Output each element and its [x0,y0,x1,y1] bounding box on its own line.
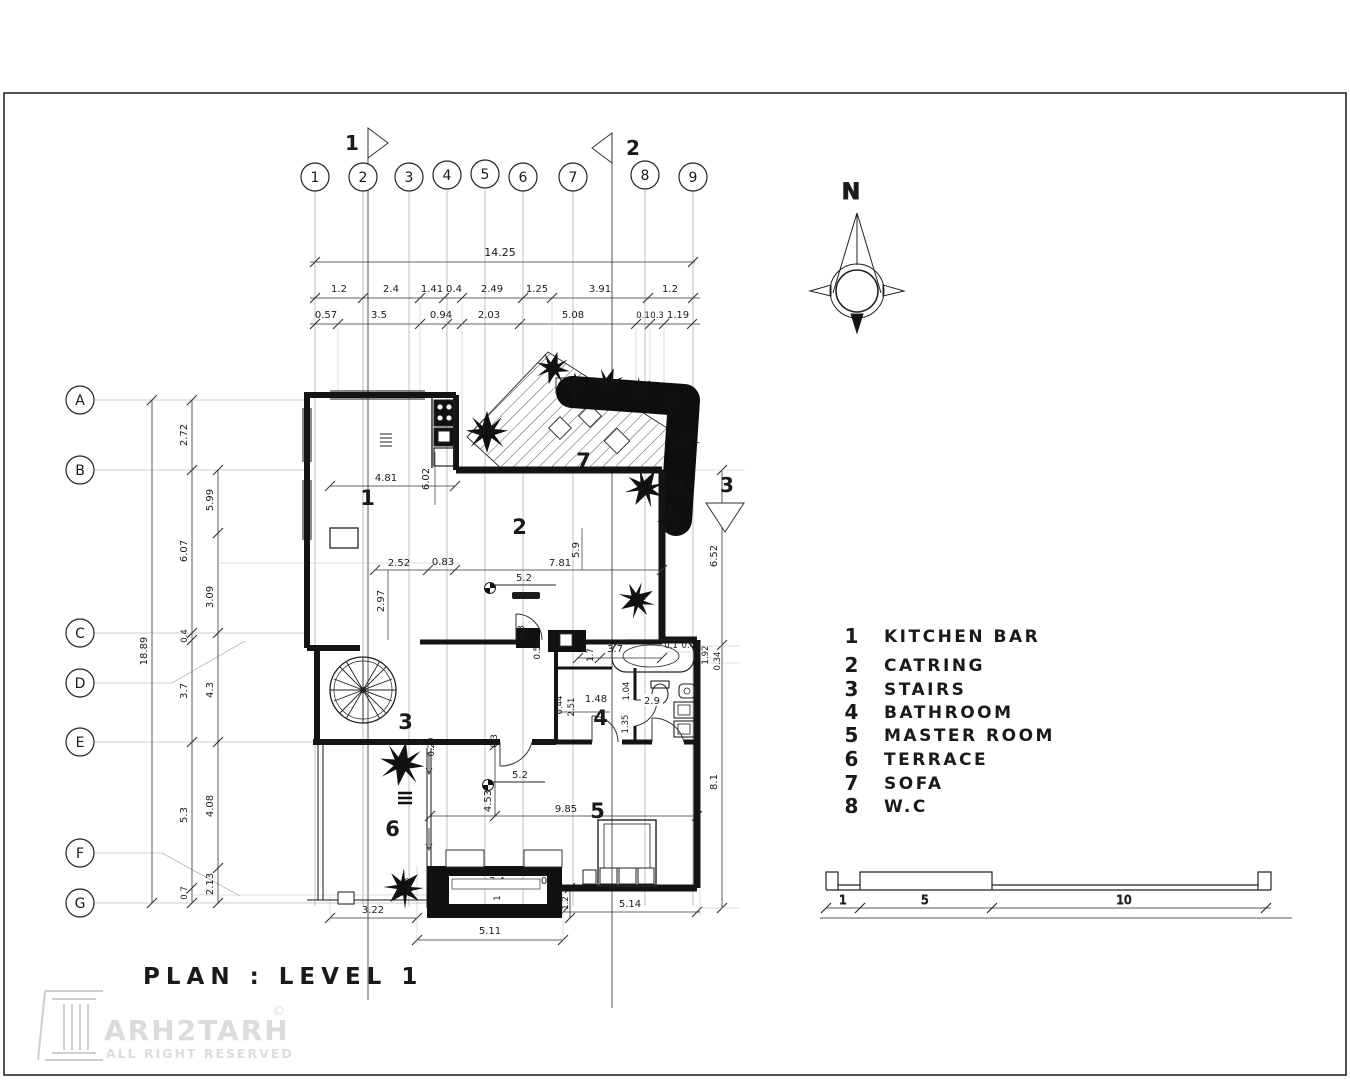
dim-label: 1.25 [526,284,548,295]
grid-label: G [75,896,86,912]
scale-bar: 1 5 10 [820,872,1292,918]
section-marker-1-label: 1 [345,131,359,155]
grid-label: A [75,393,85,409]
plant-icon [376,738,428,790]
level-value: 5.2 [512,770,528,781]
watermark-tagline: ALL RIGHT RESERVED [106,1046,294,1061]
dim-label: 6.07 [179,540,190,562]
dim-label: 1.2 [662,284,678,295]
sheet-border [4,93,1346,1075]
legend-num: 7 [845,771,860,795]
grid-label: B [75,463,85,479]
section-marker-3: 3 [706,473,744,532]
legend-num: 6 [845,747,860,771]
grid-label: 7 [569,170,578,186]
level-value: 5.2 [516,573,532,584]
kitchen-fixtures [380,398,454,468]
bed-frame [598,820,656,886]
bed-mattress [604,824,650,868]
wall-niche [330,528,358,548]
dim-label: 2.9 [644,696,660,707]
section-flag-2 [592,133,612,163]
burner [437,415,443,421]
entry-steps-icon [380,434,392,446]
dim-label: 1 [493,895,503,900]
dim-label: 6.52 [709,545,720,567]
washbasin-drain [684,688,690,694]
dim-label: 4.53 [483,790,494,812]
compass-inner [836,270,878,312]
legend-num: 5 [845,723,860,747]
dim-label: 8.1 [709,774,720,790]
floor-plan-drawing: 1 2 3 4 5 6 7 8 9 1 2 A B C D E F G [0,0,1350,1080]
dim-label: 0.29 [427,738,437,757]
door-wc [652,718,684,742]
dim-label: 2.03 [478,310,500,321]
dim-label: 1.04 [622,682,632,701]
dim-label: 2.72 [179,424,190,446]
dim-label: 0.4 [446,284,462,295]
legend-num: 8 [845,794,860,818]
plant-icon [612,575,662,625]
grid-label: 6 [519,170,528,186]
dim-label: 1.35 [621,715,631,734]
dim-label: 5.08 [562,310,584,321]
north-needle [833,213,881,293]
dim-label: 2.97 [376,590,387,612]
dim-label: 3.7 [179,683,190,699]
level-marker-1: 5.2 [485,573,557,599]
compass-east-spike [883,285,904,296]
top-dimension-labels: 14.25 1.2 2.4 1.41 0.4 2.49 1.25 3.91 1.… [315,246,689,321]
scale-label: 1 [839,893,847,907]
cabinet-upper-inner [678,705,690,715]
grid-label: 2 [359,170,368,186]
north-label: N [842,180,860,205]
stair-spiral [330,657,396,723]
dim-label: 1.2 [561,896,571,910]
shrub-bars-icon [398,793,412,803]
bathtub-basin [623,645,679,667]
grid-label: 3 [405,170,414,186]
sink-basin [438,431,450,442]
dim-label: 14.25 [484,246,516,259]
shaft-opening [560,634,572,646]
dim-label: 1.41 [421,284,443,295]
dim-label: 0.7 [180,886,190,900]
room-number-sofa: 7 [576,449,592,473]
dim-label: 0.1 [636,311,650,321]
dim-label: 0.94 [430,310,452,321]
section-flag-3 [706,503,744,532]
dim-label: 4.3 [205,682,216,698]
dim-label: 2.52 [388,558,410,569]
dim-label: 18.89 [139,637,150,666]
drawing-sheet: 1 2 3 4 5 6 7 8 9 1 2 A B C D E F G [0,0,1350,1080]
dim-label: 2.51 [567,698,577,717]
dim-label: 2.4 [383,284,399,295]
legend-label: KITCHEN BAR [884,627,1040,647]
washbasin [679,684,695,698]
dim-ticks [325,481,667,663]
grid-label: 8 [641,168,650,184]
dim-label: 5.3 [179,807,190,823]
dim-label: 4.81 [375,473,397,484]
dim-label: 0.53 [533,641,543,660]
room-number-master: 5 [590,799,606,823]
dim-label: 2.13 [205,873,216,895]
north-arrow: N [810,180,904,333]
planter-u [427,866,562,918]
dim-label: 1.19 [667,310,689,321]
legend-label: CATRING [884,656,985,676]
grid-label: 1 [311,170,320,186]
grid-label: 9 [689,170,698,186]
watermark-brand: ARH2TARH [104,1014,290,1047]
legend-label: SOFA [884,774,944,794]
sofa-seat [446,850,484,867]
interior-dim-lines [325,452,667,712]
dim-label: 5.11 [479,926,501,937]
burner [446,415,452,421]
dim-label: 3.09 [205,586,216,608]
legend-num: 1 [845,624,860,648]
compass-outer [830,264,884,318]
grid-label: 4 [443,168,452,184]
door-terrace [500,742,532,766]
watermark-logo: ARH2TARH © ALL RIGHT RESERVED [38,991,294,1061]
scale-label: 5 [921,893,929,907]
page-title: PLAN : LEVEL 1 [143,964,423,990]
legend-label: STAIRS [884,680,966,700]
walls [303,391,697,908]
room-number-kitchen: 1 [360,486,376,510]
room-number-stairs: 3 [398,710,414,734]
dim-label: 0.3 [650,311,664,321]
dim-label: 0.34 [713,652,723,671]
dim-label: 3.22 [362,905,384,916]
legend-label: BATHROOM [884,703,1014,723]
dim-label: 3.7 [607,644,623,655]
stove [434,400,454,426]
room-number-terrace: 6 [385,817,401,841]
pillar-icon [38,991,103,1060]
grid-lines-vertical [315,190,693,906]
legend-label: MASTER ROOM [884,726,1055,746]
dim-label: 2.49 [481,284,503,295]
dim-label: 1.2 [331,284,347,295]
section-flag-1 [368,128,388,158]
burner [437,404,443,410]
elevation-smudge [512,592,540,599]
left-dimension-labels: 18.89 2.72 6.07 0.4 3.7 5.3 0.7 5.99 3.0… [139,424,216,900]
dim-label: 0.57 [315,310,337,321]
bed-pillow [600,868,617,884]
dim-label: 1.7 [586,648,596,662]
compass-south-spike [851,314,863,333]
stair-post [361,688,366,693]
scale-bar-profile [826,872,1271,890]
room-number-catring: 2 [512,515,528,539]
dim-label: 0.83 [432,557,454,568]
scale-label: 10 [1116,893,1131,907]
dim-label: 4.08 [205,795,216,817]
dim-label: 1.92 [701,646,711,665]
dim-label: 0.3 [517,625,527,639]
extension-lines [192,563,460,895]
left-dimensions [147,395,460,908]
legend-num: 3 [845,677,860,701]
dim-label: 9.85 [555,804,577,815]
dim-label: 5.14 [619,899,641,910]
legend-num: 2 [845,653,860,677]
dim-label: 0.4 [180,629,190,643]
fridge [434,448,454,466]
watermark-copyright: © [272,1004,285,1019]
legend-label: TERRACE [884,750,988,770]
dim-label: 3.91 [589,284,611,295]
cabinet-upper [674,702,694,718]
section-marker-2-label: 2 [626,136,640,160]
bed-pillow [619,868,636,884]
nightstand [583,870,596,884]
dim-label: 3.5 [371,310,387,321]
level-marker-2: 5.2 [483,770,546,791]
room-number-bathroom: 4 [593,706,609,730]
sofa-seat [524,850,562,867]
compass-west-spike [810,285,831,296]
grid-label: C [75,626,85,642]
grid-label: 5 [481,167,490,183]
dim-label: 5.99 [205,489,216,511]
wall-east [662,640,697,888]
legend-label: W.C [884,797,928,817]
terrace-post [338,892,354,904]
bench [452,879,540,889]
section-marker-3-label: 3 [720,473,734,497]
dim-label: 7.81 [549,558,571,569]
grid-left: A B C D E F G [66,386,427,917]
grid-label: E [76,735,85,751]
plant-icon [376,860,431,915]
bed-pillow [638,868,654,884]
grid-leader-bends [162,641,245,896]
grid-label: D [75,676,86,692]
burner [446,404,452,410]
dim-label: 0.44 [555,696,565,715]
dim-label: 1.48 [585,694,607,705]
grid-label: F [76,846,84,862]
dim-label: 5.9 [571,542,582,558]
dim-label: 0.3 [490,734,500,748]
dim-label: 6.02 [421,468,432,490]
legend-num: 4 [845,700,860,724]
legend: 1 KITCHEN BAR 2 CATRING 3 STAIRS 4 BATHR… [845,624,1055,818]
dim-lines [152,400,218,903]
